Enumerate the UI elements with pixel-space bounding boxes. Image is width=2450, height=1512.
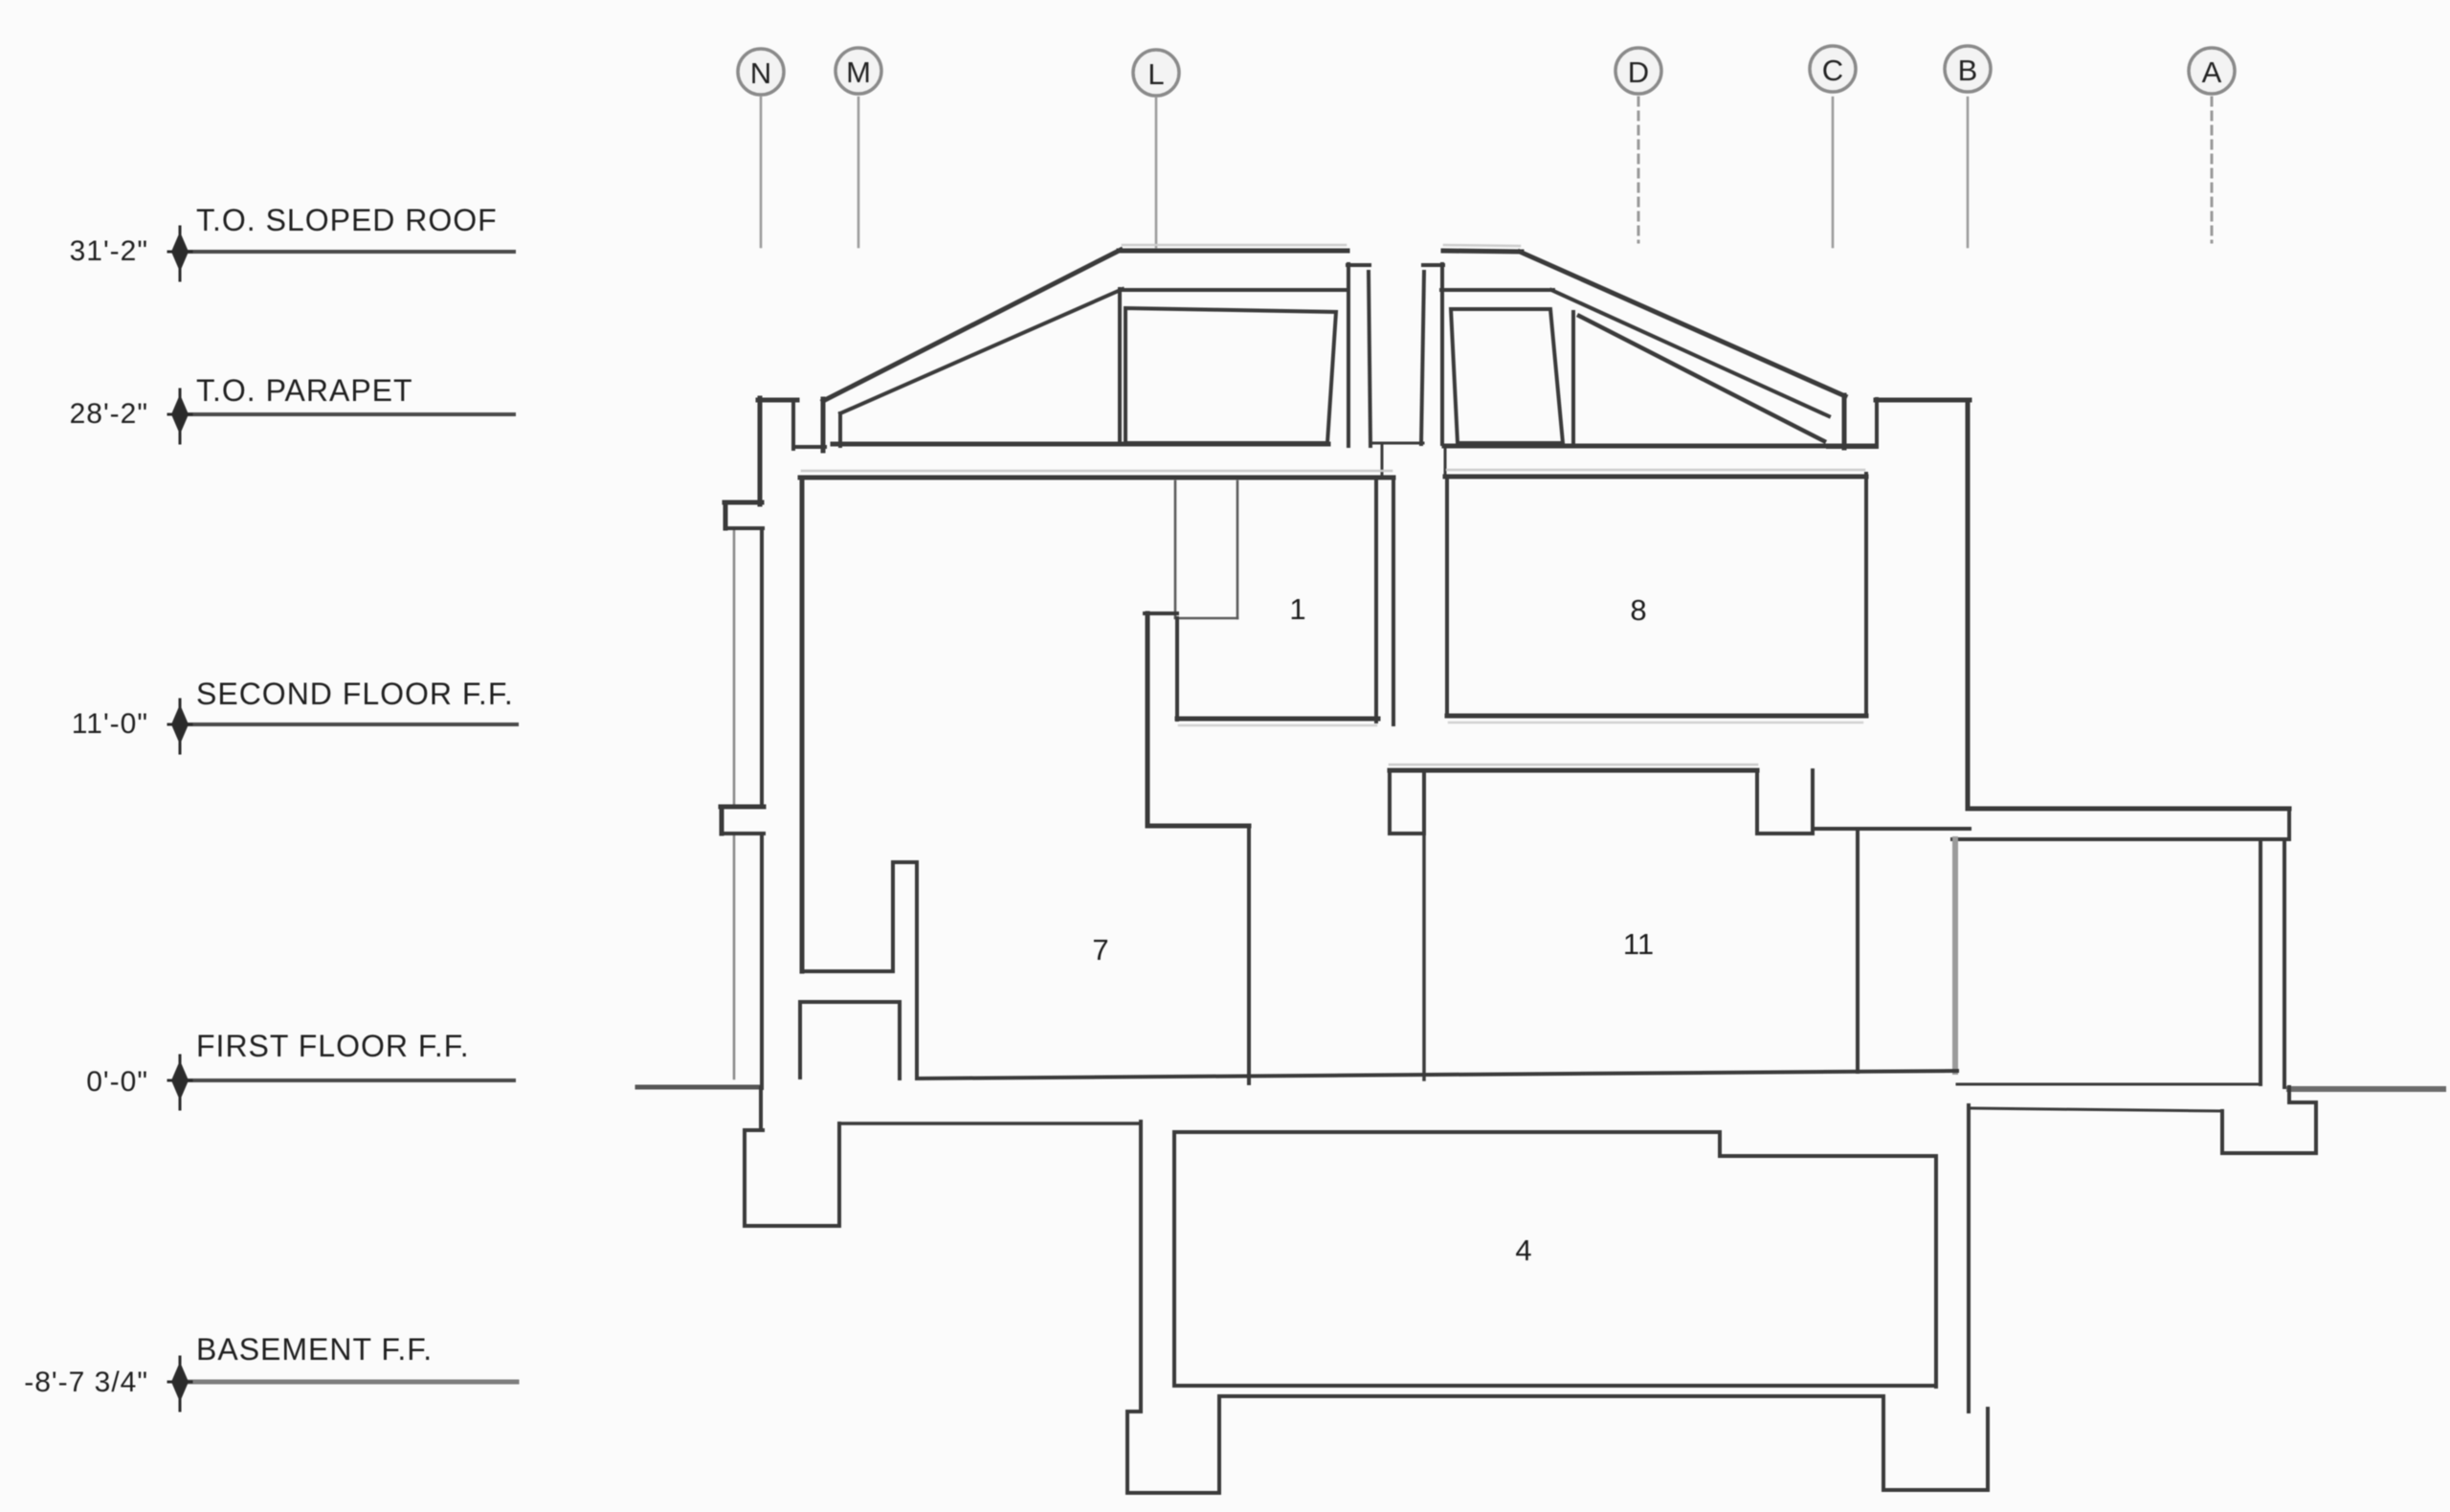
- svg-text:T.O. PARAPET: T.O. PARAPET: [196, 373, 413, 408]
- svg-text:4: 4: [1515, 1234, 1531, 1267]
- svg-text:31'-2": 31'-2": [70, 235, 148, 267]
- svg-text:T.O. SLOPED ROOF: T.O. SLOPED ROOF: [196, 203, 498, 237]
- svg-text:28'-2": 28'-2": [70, 398, 148, 430]
- svg-text:A: A: [2202, 56, 2222, 89]
- svg-text:M: M: [846, 56, 871, 89]
- svg-text:-8'-7 3/4": -8'-7 3/4": [24, 1367, 148, 1398]
- svg-text:C: C: [1822, 54, 1843, 87]
- svg-text:BASEMENT F.F.: BASEMENT F.F.: [196, 1332, 433, 1367]
- svg-text:1: 1: [1289, 592, 1305, 626]
- svg-text:11'-0": 11'-0": [72, 708, 148, 740]
- svg-text:8: 8: [1630, 593, 1646, 627]
- svg-text:SECOND FLOOR F.F.: SECOND FLOOR F.F.: [196, 677, 514, 711]
- svg-text:0'-0": 0'-0": [86, 1066, 148, 1098]
- svg-text:11: 11: [1623, 927, 1654, 961]
- svg-text:D: D: [1628, 56, 1649, 89]
- svg-text:FIRST FLOOR F.F.: FIRST FLOOR F.F.: [196, 1029, 470, 1063]
- svg-text:B: B: [1958, 54, 1978, 87]
- svg-text:L: L: [1147, 57, 1164, 91]
- svg-text:7: 7: [1092, 933, 1108, 967]
- svg-text:N: N: [750, 56, 771, 90]
